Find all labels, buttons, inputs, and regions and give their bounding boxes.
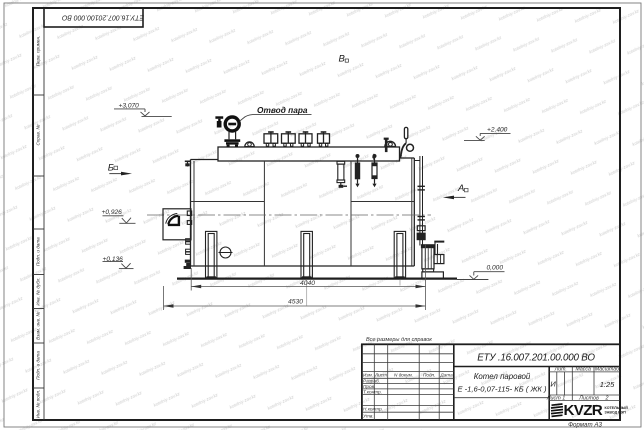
svg-text:1:25: 1:25: [600, 380, 615, 389]
svg-text:И: И: [550, 380, 556, 389]
svg-text:Отвод пара: Отвод пара: [257, 105, 308, 115]
svg-text:4040: 4040: [300, 280, 315, 287]
svg-text:КОТЕЛЬНЫЙ: КОТЕЛЬНЫЙ: [605, 406, 629, 410]
svg-text:Лист: Лист: [374, 372, 387, 377]
svg-text:4530: 4530: [288, 299, 303, 306]
svg-text:Пров.: Пров.: [363, 384, 375, 389]
svg-text:N докум.: N докум.: [394, 372, 413, 377]
svg-text:Лист 1: Лист 1: [546, 396, 565, 402]
svg-text:Листов: Листов: [578, 396, 599, 402]
svg-text:ЕТУ .16.007.201.00.000 ВО: ЕТУ .16.007.201.00.000 ВО: [477, 353, 595, 364]
svg-text:Котел паровой: Котел паровой: [474, 372, 531, 381]
svg-text:+0,136: +0,136: [103, 256, 124, 263]
svg-text:Н.контр.: Н.контр.: [363, 407, 383, 412]
svg-text:Лит.: Лит.: [554, 366, 567, 372]
svg-text:Подп.: Подп.: [423, 372, 435, 377]
svg-text:Б: Б: [108, 163, 114, 174]
svg-text:+2,400: +2,400: [487, 127, 508, 134]
svg-text:Утв.: Утв.: [363, 413, 374, 418]
svg-text:Дата: Дата: [439, 372, 453, 377]
svg-text:Масса: Масса: [576, 366, 591, 372]
svg-text:Формат А3: Формат А3: [568, 422, 602, 429]
svg-text:+3,070: +3,070: [119, 102, 140, 109]
svg-text:Т.контр.: Т.контр.: [363, 389, 382, 394]
svg-text:Подп. и дата: Подп. и дата: [36, 237, 41, 266]
svg-text:Изм.: Изм.: [363, 372, 373, 377]
svg-text:Подп. и дата: Подп. и дата: [36, 351, 41, 380]
svg-text:В: В: [339, 54, 346, 65]
svg-text:А: А: [457, 183, 464, 194]
svg-text:Справ. №: Справ. №: [36, 125, 41, 146]
svg-text:0,000: 0,000: [487, 265, 504, 272]
svg-text:Взам. инв. №: Взам. инв. №: [36, 311, 41, 339]
svg-text:Все размеры для справок: Все размеры для справок: [366, 337, 432, 343]
svg-text:Инв. № дубл.: Инв. № дубл.: [36, 277, 41, 305]
svg-text:Инв. № подл.: Инв. № подл.: [36, 390, 41, 419]
svg-text:ЕТУ.16.007.20100.000 ВО: ЕТУ.16.007.20100.000 ВО: [61, 14, 144, 21]
svg-text:2: 2: [605, 396, 609, 402]
svg-text:+0,926: +0,926: [102, 209, 123, 216]
svg-text:Разраб.: Разраб.: [363, 379, 380, 384]
svg-text:KVZR: KVZR: [564, 402, 603, 419]
svg-text:Перв. примен.: Перв. примен.: [36, 36, 41, 67]
svg-text:Е -1,6-0,07-115- КБ ( ЖК ): Е -1,6-0,07-115- КБ ( ЖК ): [457, 384, 547, 393]
svg-text:ЗАВОД РЭП: ЗАВОД РЭП: [605, 411, 627, 415]
svg-text:Масштаб: Масштаб: [595, 366, 620, 372]
